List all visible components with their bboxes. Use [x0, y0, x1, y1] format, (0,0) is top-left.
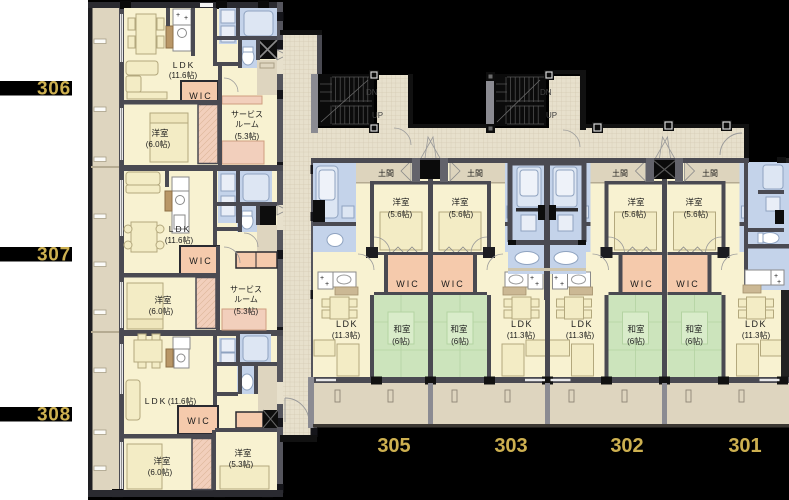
svg-text:302: 302	[610, 435, 643, 457]
svg-text:洋室: 洋室	[153, 456, 171, 466]
svg-text:(11.3帖): (11.3帖)	[507, 330, 536, 340]
svg-text:+: +	[176, 12, 180, 19]
svg-text:306: 306	[37, 79, 71, 100]
svg-text:LDK: LDK	[571, 319, 593, 329]
svg-text:LDK: LDK	[145, 396, 168, 406]
svg-text:土間: 土間	[612, 168, 628, 178]
svg-text:+: +	[530, 275, 534, 282]
svg-text:(6.0帖): (6.0帖)	[146, 139, 171, 149]
svg-text:LDK: LDK	[336, 319, 358, 329]
svg-text:和室: 和室	[393, 324, 411, 334]
svg-text:(6.0帖): (6.0帖)	[149, 306, 174, 316]
svg-text:307: 307	[37, 245, 71, 266]
svg-text:(5.3帖): (5.3帖)	[229, 459, 254, 469]
svg-text:DN: DN	[540, 88, 552, 97]
svg-text:(11.6帖): (11.6帖)	[168, 396, 197, 406]
svg-text:(5.6帖): (5.6帖)	[684, 209, 709, 219]
svg-text:WIC: WIC	[189, 91, 213, 101]
svg-text:+: +	[184, 15, 188, 22]
svg-text:(5.6帖): (5.6帖)	[449, 209, 474, 219]
svg-text:+: +	[777, 279, 781, 286]
svg-text:(11.3帖): (11.3帖)	[566, 330, 595, 340]
svg-text:洋室: 洋室	[627, 197, 645, 207]
svg-text:サービス: サービス	[230, 285, 262, 294]
svg-text:+: +	[535, 281, 539, 288]
svg-text:(6帖): (6帖)	[392, 336, 410, 346]
svg-text:洋室: 洋室	[154, 295, 172, 305]
svg-text:WIC: WIC	[187, 416, 211, 426]
svg-text:WIC: WIC	[630, 279, 654, 289]
svg-text:ルーム: ルーム	[234, 295, 258, 304]
svg-text:(6帖): (6帖)	[627, 336, 645, 346]
svg-text:土間: 土間	[702, 168, 718, 178]
svg-text:+: +	[320, 275, 324, 282]
svg-text:和室: 和室	[685, 324, 703, 334]
svg-text:(5.3帖): (5.3帖)	[234, 306, 259, 316]
svg-text:洋室: 洋室	[151, 128, 169, 138]
svg-text:+: +	[554, 275, 558, 282]
svg-text:和室: 和室	[627, 324, 645, 334]
svg-text:+: +	[325, 281, 329, 288]
svg-text:+: +	[560, 281, 564, 288]
svg-text:(11.6帖): (11.6帖)	[165, 235, 194, 245]
svg-text:301: 301	[728, 435, 761, 457]
svg-text:(5.6帖): (5.6帖)	[622, 209, 647, 219]
svg-text:303: 303	[494, 435, 527, 457]
svg-text:WIC: WIC	[441, 279, 465, 289]
svg-text:(5.6帖): (5.6帖)	[388, 209, 413, 219]
svg-text:土間: 土間	[467, 168, 483, 178]
svg-text:(6帖): (6帖)	[685, 336, 703, 346]
svg-text:(5.3帖): (5.3帖)	[235, 131, 260, 141]
svg-text:DN: DN	[366, 88, 378, 97]
svg-text:305: 305	[377, 435, 410, 457]
svg-text:洋室: 洋室	[451, 197, 469, 207]
svg-text:洋室: 洋室	[392, 197, 410, 207]
svg-text:サービス: サービス	[231, 110, 263, 119]
svg-text:(6帖): (6帖)	[451, 336, 469, 346]
svg-text:LDK: LDK	[745, 319, 767, 329]
svg-text:洋室: 洋室	[685, 197, 703, 207]
svg-text:和室: 和室	[450, 324, 468, 334]
svg-text:UP: UP	[372, 111, 383, 120]
svg-text:308: 308	[37, 405, 71, 426]
svg-text:LDK: LDK	[169, 224, 192, 234]
svg-text:(11.3帖): (11.3帖)	[742, 330, 771, 340]
svg-text:(6.0帖): (6.0帖)	[148, 467, 173, 477]
svg-text:洋室: 洋室	[234, 448, 252, 458]
svg-text:(11.3帖): (11.3帖)	[332, 330, 361, 340]
svg-text:WIC: WIC	[189, 256, 213, 266]
svg-text:LDK: LDK	[511, 319, 533, 329]
svg-text:UP: UP	[546, 111, 557, 120]
svg-text:ルーム: ルーム	[235, 120, 259, 129]
svg-text:LDK: LDK	[173, 60, 196, 70]
svg-text:(11.6帖): (11.6帖)	[169, 70, 198, 80]
svg-text:土間: 土間	[378, 168, 394, 178]
svg-text:WIC: WIC	[676, 279, 700, 289]
svg-text:WIC: WIC	[396, 279, 420, 289]
